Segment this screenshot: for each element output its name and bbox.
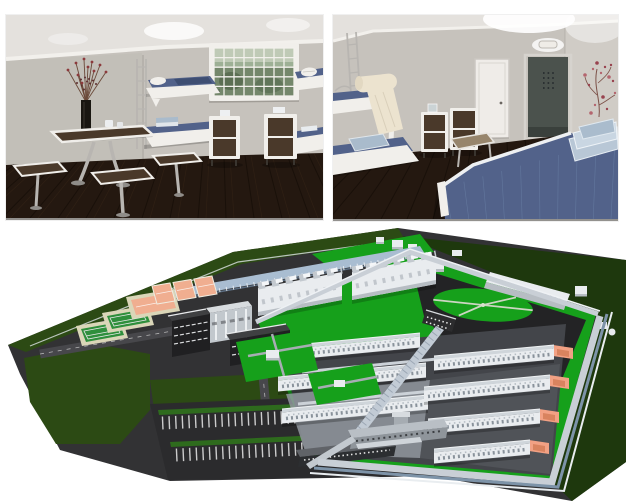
cup [117,122,123,128]
white-door [475,59,509,139]
photo-cell-room-right [333,15,618,221]
barred-window [209,43,299,102]
wall-shading [6,53,142,173]
photo-collage [0,0,626,502]
glass-building [168,309,210,357]
shed [334,380,345,387]
large-lawn [24,344,150,444]
ceiling-light-glow [144,22,204,40]
cup [105,120,113,127]
photo-cell-room-left [6,15,323,220]
facility-aerial-render [0,224,626,502]
cabinet-top-item [220,110,230,116]
ceiling-light-glow [266,18,310,32]
ceiling-light-glow [48,33,88,45]
storage-cabinet [262,107,300,168]
photo-facility-aerial [0,224,626,502]
door-knob [500,102,503,105]
cabinet-top-item [273,107,285,113]
guard-tower [609,329,616,336]
storage-cabinet [448,108,482,156]
wall-sconce [532,38,564,52]
cell-room-right-render [333,15,618,219]
cell-room-left-render [6,15,323,218]
glass-item [428,104,437,112]
metal-door [525,55,571,139]
storage-cabinet [419,104,451,158]
shed [266,350,279,358]
